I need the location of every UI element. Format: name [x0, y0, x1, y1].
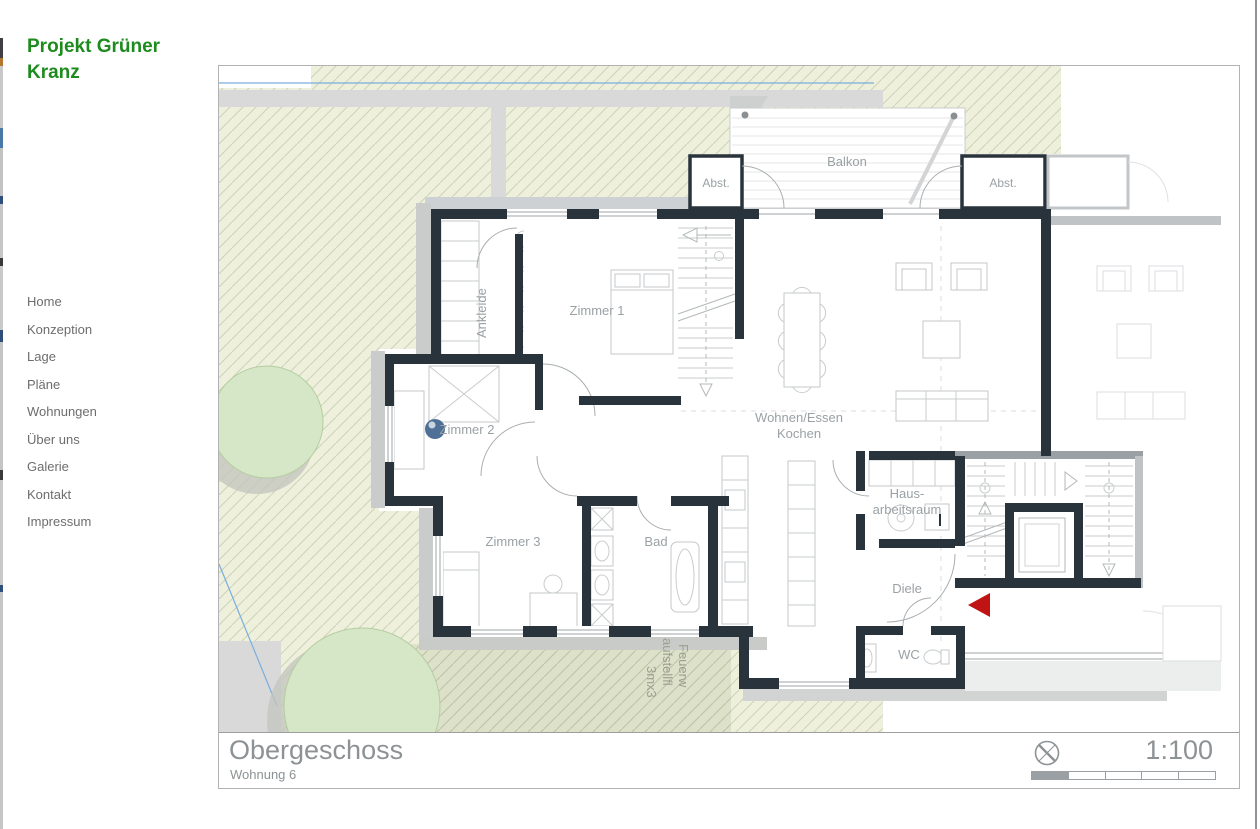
scale-bar-segment [1142, 772, 1179, 779]
scale-bar [1031, 771, 1216, 780]
plan-title-block: Obergeschoss Wohnung 6 1:100 [219, 732, 1239, 788]
floorplan-drawing: Balkon Abst. Abst. Ankleide Zimmer 1 Zim… [219, 66, 1239, 732]
label-abst-left: Abst. [702, 176, 729, 190]
nav-item-impressum[interactable]: Impressum [27, 514, 97, 542]
nav-item-wohnungen[interactable]: Wohnungen [27, 404, 97, 432]
label-zimmer3: Zimmer 3 [486, 534, 541, 549]
scale-bar-segment [1106, 772, 1143, 779]
nav-item-home[interactable]: Home [27, 294, 97, 322]
label-zimmer2: Zimmer 2 [440, 422, 495, 437]
scale-label: 1:100 [1145, 735, 1213, 766]
scale-bar-segment [1032, 772, 1069, 779]
balcony-post [951, 113, 958, 120]
nav-item-konzeption[interactable]: Konzeption [27, 322, 97, 350]
label-feuerwehr-3: 3mx3 [644, 666, 659, 698]
label-zimmer1: Zimmer 1 [570, 303, 625, 318]
label-bad: Bad [644, 534, 667, 549]
unit-subtitle: Wohnung 6 [230, 767, 296, 782]
window-edge-strip [0, 0, 3, 829]
elevator-car [1019, 518, 1065, 572]
floor-title: Obergeschoss [229, 735, 403, 766]
label-haus-1: Haus- [890, 486, 925, 501]
scale-bar-segment [1069, 772, 1106, 779]
elevator-shaft-wall [1005, 503, 1014, 581]
nav-item-plaene[interactable]: Pläne [27, 377, 97, 405]
label-wc: WC [898, 647, 920, 662]
floorplan-panel: Balkon Abst. Abst. Ankleide Zimmer 1 Zim… [218, 65, 1240, 789]
label-ankleide: Ankleide [474, 288, 489, 338]
north-compass-icon [1033, 739, 1061, 767]
page: Projekt Grüner Kranz Home Konzeption Lag… [0, 0, 1260, 829]
scrollbar[interactable] [1255, 0, 1257, 829]
nav-item-ueber-uns[interactable]: Über uns [27, 432, 97, 460]
label-balkon: Balkon [827, 154, 867, 169]
scale-bar-segment [1179, 772, 1215, 779]
label-wohnen-1: Wohnen/Essen [755, 410, 843, 425]
balcony-post [742, 112, 749, 119]
sidebar-nav: Home Konzeption Lage Pläne Wohnungen Übe… [27, 294, 97, 542]
nav-item-lage[interactable]: Lage [27, 349, 97, 377]
label-feuerwehr-1: Feuerw [676, 644, 691, 688]
nav-item-kontakt[interactable]: Kontakt [27, 487, 97, 515]
site-title: Projekt Grüner Kranz [27, 34, 160, 85]
label-haus-2: arbeitsraum [873, 502, 942, 517]
label-wohnen-2: Kochen [777, 426, 821, 441]
tree [219, 366, 323, 478]
site-title-line1: Projekt Grüner [27, 34, 160, 60]
label-abst-right: Abst. [989, 176, 1016, 190]
label-diele: Diele [892, 581, 922, 596]
neighbor-storage-room [1048, 156, 1128, 208]
nav-item-galerie[interactable]: Galerie [27, 459, 97, 487]
site-title-line2: Kranz [27, 60, 160, 86]
label-feuerwehr-2: aufstellfl [660, 638, 675, 686]
